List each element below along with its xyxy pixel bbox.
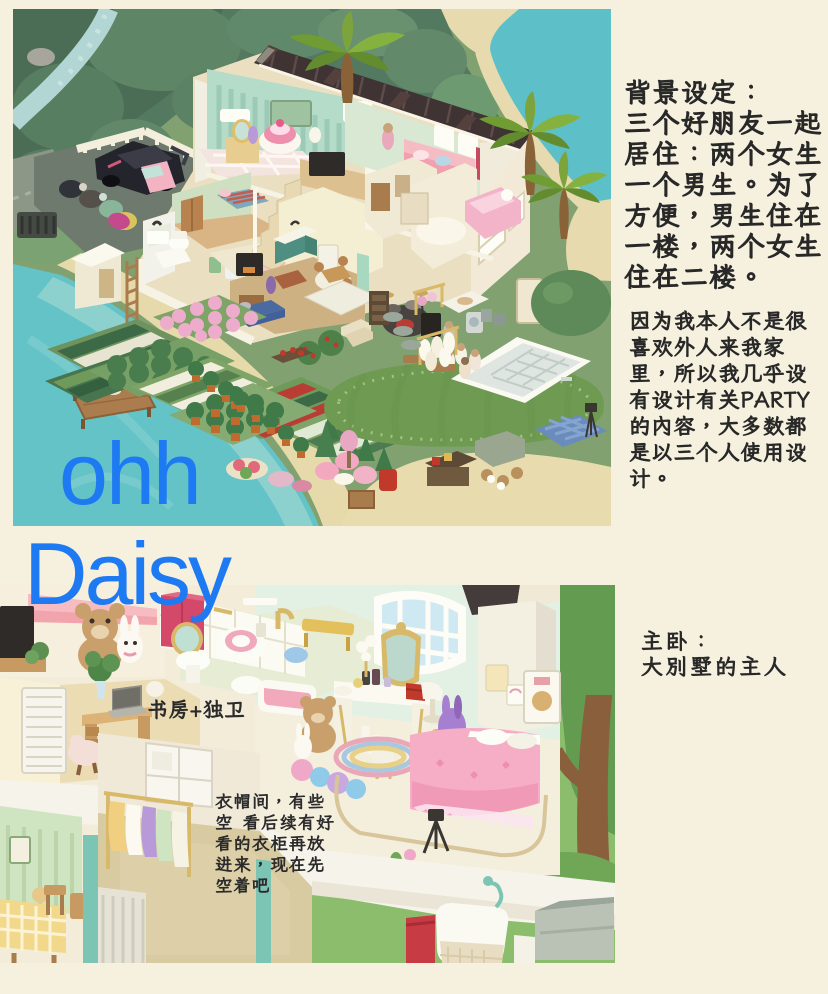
svg-text:ohh: ohh: [59, 424, 200, 523]
svg-text:Daisy: Daisy: [24, 524, 232, 623]
